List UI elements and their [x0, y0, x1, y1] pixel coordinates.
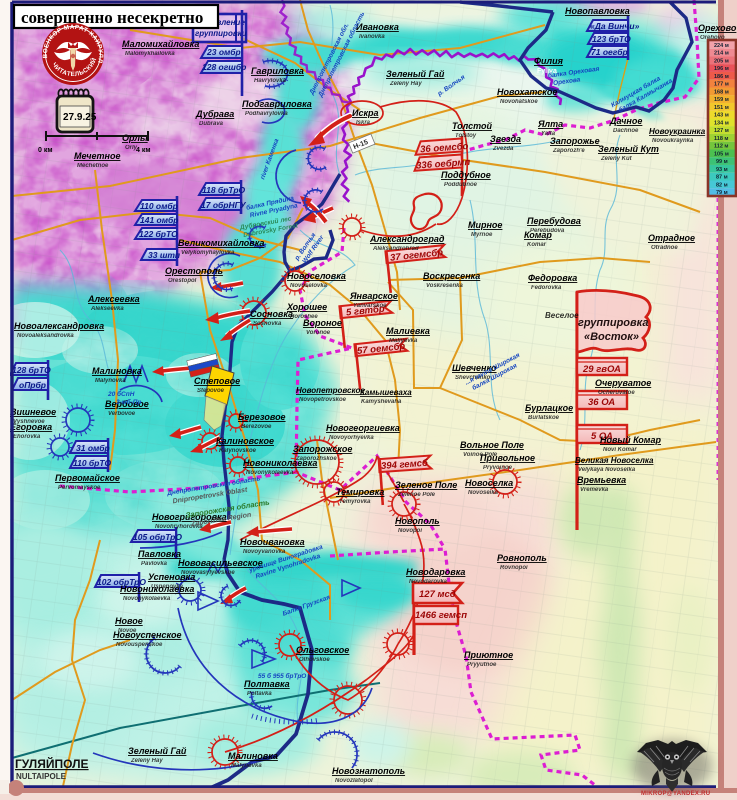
svg-text:127 м: 127 м	[714, 128, 729, 134]
svg-text:Малиевка: Малиевка	[386, 326, 430, 336]
svg-text:1466 гемсп: 1466 гемсп	[415, 610, 467, 621]
svg-text:118 м: 118 м	[714, 136, 728, 142]
svg-text:93 м: 93 м	[716, 167, 728, 173]
svg-text:0 км: 0 км	[38, 147, 53, 154]
svg-text:Malynovka: Malynovka	[231, 763, 262, 769]
svg-text:105 м: 105 м	[714, 151, 729, 157]
svg-text:Маломихайловка: Маломихайловка	[122, 39, 199, 49]
svg-text:Новый Комар: Новый Комар	[600, 435, 661, 445]
svg-text:Приютное: Приютное	[464, 650, 513, 660]
svg-text:Kamyshevaha: Kamyshevaha	[361, 399, 402, 405]
svg-text:Novoaleksandrovka: Novoaleksandrovka	[17, 333, 74, 339]
svg-text:Zeleny Hay: Zeleny Hay	[130, 758, 163, 764]
svg-text:Егоровка: Егоровка	[10, 422, 52, 432]
svg-text:Поддубное: Поддубное	[441, 170, 491, 180]
svg-text:Павловка: Павловка	[138, 549, 181, 559]
svg-text:Алексеевка: Алексеевка	[87, 294, 140, 304]
svg-text:Velykomyhaylovka: Velykomyhaylovka	[181, 250, 235, 256]
svg-text:Ольговское: Ольговское	[296, 645, 349, 655]
svg-text:Толстой: Толстой	[452, 121, 493, 131]
svg-text:Орлы: Орлы	[122, 133, 148, 143]
svg-text:Новодаровка: Новодаровка	[406, 567, 465, 577]
svg-text:Хорошее: Хорошее	[286, 302, 327, 312]
svg-text:31 омбр: 31 омбр	[76, 443, 110, 453]
svg-text:NULTAIPOLE: NULTAIPOLE	[16, 772, 67, 781]
svg-text:33 штп: 33 штп	[148, 250, 181, 260]
svg-text:143 м: 143 м	[714, 113, 729, 119]
svg-text:Мирное: Мирное	[468, 220, 502, 230]
svg-text:Ivanovka: Ivanovka	[359, 34, 385, 40]
svg-text:Мечетное: Мечетное	[74, 151, 120, 161]
svg-text:128 брТО: 128 брТО	[12, 365, 51, 375]
svg-text:Камышеваха: Камышеваха	[360, 388, 412, 397]
svg-text:Dachnoe: Dachnoe	[613, 128, 639, 134]
svg-text:Burlatskoe: Burlatskoe	[528, 415, 560, 421]
svg-text:Филия: Филия	[534, 56, 564, 66]
svg-text:Успеновка: Успеновка	[148, 572, 195, 582]
svg-text:186 м: 186 м	[714, 74, 729, 80]
svg-text:Зеленый Кут: Зеленый Кут	[598, 144, 659, 154]
svg-text:Novozlatopol: Novozlatopol	[335, 778, 373, 784]
svg-text:Zaporozh'e: Zaporozh'e	[552, 148, 585, 154]
svg-text:Очеруватое: Очеруватое	[595, 378, 651, 388]
svg-text:Kalynovskoe: Kalynovskoe	[219, 448, 257, 454]
svg-text:122 брТО: 122 брТО	[139, 229, 178, 239]
svg-text:99 м: 99 м	[716, 159, 728, 165]
svg-text:Дубрава: Дубрава	[195, 109, 234, 119]
svg-text:Степовое: Степовое	[194, 376, 240, 386]
svg-text:Январское: Январское	[349, 291, 398, 301]
svg-text:Zvezda: Zvezda	[492, 146, 514, 152]
svg-text:Новоселовка: Новоселовка	[287, 271, 346, 281]
svg-text:Novouspenskoe: Novouspenskoe	[116, 642, 163, 648]
svg-text:Berezovoe: Berezovoe	[241, 424, 272, 430]
svg-text:Бурлацкое: Бурлацкое	[525, 403, 573, 413]
svg-text:27.9.25: 27.9.25	[63, 112, 97, 123]
svg-text:Zaporozhskoe: Zaporozhskoe	[295, 456, 337, 462]
svg-text:Новогеоргиевка: Новогеоргиевка	[326, 423, 400, 433]
svg-text:123 брТО: 123 брТО	[592, 34, 631, 44]
svg-text:Aleksandrohrad: Aleksandrohrad	[372, 246, 419, 252]
svg-text:Pervomayskoe: Pervomayskoe	[58, 485, 101, 491]
svg-text:Novohatskoe: Novohatskoe	[500, 99, 538, 105]
svg-text:Александроград: Александроград	[369, 234, 445, 244]
svg-text:Orestopol: Orestopol	[168, 278, 197, 284]
svg-text:Великая Новоселка: Великая Новоселка	[575, 456, 654, 465]
svg-text:Myrnoe: Myrnoe	[471, 232, 493, 238]
svg-text:Малиновка: Малиновка	[228, 751, 278, 761]
svg-text:Новоалександровка: Новоалександровка	[14, 321, 104, 331]
svg-text:Комар: Комар	[524, 230, 552, 240]
svg-text:20 бСпН: 20 бСпН	[107, 390, 135, 398]
svg-text:Temyrovka: Temyrovka	[339, 499, 371, 505]
svg-text:Pryvoinoe: Pryvoinoe	[483, 465, 513, 471]
svg-text:Веселое: Веселое	[545, 311, 579, 320]
svg-text:17 обрНГУ: 17 обрНГУ	[201, 200, 247, 210]
svg-text:Yalta: Yalta	[541, 131, 556, 137]
svg-text:151 м: 151 м	[714, 105, 729, 111]
svg-text:Novoseika: Novoseika	[468, 490, 499, 496]
svg-text:Zeleny Kut: Zeleny Kut	[600, 156, 633, 162]
svg-text:29 гвОА: 29 гвОА	[582, 364, 621, 375]
svg-text:177 м: 177 м	[714, 82, 729, 88]
svg-text:Zelenoe Pole: Zelenoe Pole	[397, 492, 436, 498]
svg-text:Орехово: Орехово	[698, 23, 737, 33]
svg-text:Дачное: Дачное	[609, 116, 642, 126]
svg-text:«Восток»: «Восток»	[584, 331, 639, 343]
svg-text:Новохатское: Новохатское	[497, 87, 557, 97]
svg-text:Zeleny Hay: Zeleny Hay	[389, 81, 422, 87]
svg-text:Novoyvanovka: Novoyvanovka	[243, 549, 286, 555]
svg-text:Novi Komar: Novi Komar	[603, 447, 637, 453]
svg-text:Привольное: Привольное	[480, 453, 535, 463]
svg-text:Otradnoe: Otradnoe	[651, 245, 678, 251]
svg-text:Новоивановка: Новоивановка	[240, 537, 305, 547]
svg-text:Искра: Искра	[352, 108, 379, 118]
svg-text:Великомихайловка: Великомихайловка	[178, 238, 264, 248]
svg-text:Новополь: Новополь	[395, 516, 440, 526]
svg-text:196 м: 196 м	[714, 66, 729, 72]
svg-text:Запорожское: Запорожское	[293, 444, 352, 454]
svg-text:Maliyevka: Maliyevka	[389, 338, 418, 344]
svg-text:Малиновка: Малиновка	[92, 366, 142, 376]
svg-text:Voskresenka: Voskresenka	[426, 283, 463, 289]
svg-text:Tolstoy: Tolstoy	[455, 133, 477, 139]
svg-text:Dubrava: Dubrava	[199, 121, 224, 127]
svg-text:82 м: 82 м	[716, 182, 728, 188]
svg-text:Novopetrovskoe: Novopetrovskoe	[299, 397, 347, 403]
svg-text:Pryyutnoe: Pryyutnoe	[467, 662, 497, 668]
svg-text:Velykaya Novoselka: Velykaya Novoselka	[578, 467, 636, 473]
svg-text:Новопетровское: Новопетровское	[296, 386, 365, 395]
svg-text:Новоуспенское: Новоуспенское	[113, 630, 182, 640]
svg-text:Звезда: Звезда	[490, 134, 521, 144]
svg-text:Подгавриловка: Подгавриловка	[242, 99, 312, 109]
svg-text:Novoselovka: Novoselovka	[290, 283, 328, 289]
svg-text:Havrylovka: Havrylovka	[254, 78, 287, 84]
svg-text:Новознатополь: Новознатополь	[332, 766, 405, 776]
svg-text:Komar: Komar	[527, 242, 547, 248]
svg-text:Ялта: Ялта	[537, 119, 563, 129]
svg-text:Vremevka: Vremevka	[580, 487, 609, 493]
svg-text:Федоровка: Федоровка	[528, 273, 577, 283]
svg-text:118 брТрО: 118 брТрО	[202, 185, 246, 195]
svg-text:Новоукраинка: Новоукраинка	[649, 127, 706, 136]
svg-text:Времьевка: Времьевка	[577, 475, 626, 485]
svg-text:110 омбр: 110 омбр	[140, 201, 178, 211]
svg-text:Ивановка: Ивановка	[356, 22, 399, 32]
svg-text:Stepovoe: Stepovoe	[197, 388, 225, 394]
svg-text:Poddubnoe: Poddubnoe	[444, 182, 478, 188]
svg-text:Novoyorhyevka: Novoyorhyevka	[329, 435, 374, 441]
svg-text:112 м: 112 м	[714, 144, 728, 150]
svg-text:Гавриловка: Гавриловка	[251, 66, 304, 76]
svg-text:Калиновское: Калиновское	[216, 436, 274, 446]
svg-text:«Да Винчи»: «Да Винчи»	[590, 21, 640, 31]
svg-text:Novonykolaevka: Novonykolaevka	[246, 470, 294, 476]
svg-text:55 б 955 брТрО: 55 б 955 брТрО	[258, 672, 306, 680]
svg-text:Орестополь: Орестополь	[165, 266, 223, 276]
svg-text:Зеленое Поле: Зеленое Поле	[395, 480, 457, 490]
svg-text:224 м: 224 м	[714, 43, 729, 49]
svg-text:Темировка: Темировка	[336, 487, 384, 497]
svg-text:Yanvarskoe: Yanvarskoe	[353, 303, 387, 309]
svg-text:Вольное Поле: Вольное Поле	[460, 440, 524, 450]
svg-text:Mechetnoe: Mechetnoe	[77, 163, 109, 169]
svg-text:Первомайское: Первомайское	[55, 473, 120, 483]
svg-text:Novonykolaevka: Novonykolaevka	[123, 596, 171, 602]
svg-text:Sosnovka: Sosnovka	[253, 321, 282, 327]
svg-text:105 обрТрО: 105 обрТрО	[133, 532, 182, 542]
svg-text:4 км: 4 км	[136, 147, 151, 154]
svg-text:Fedorovka: Fedorovka	[531, 285, 562, 291]
svg-text:Verbovoe: Verbovoe	[108, 411, 136, 417]
svg-text:Ehorovka: Ehorovka	[13, 434, 41, 440]
svg-text:Полтавка: Полтавка	[244, 679, 290, 689]
svg-text:Вороное: Вороное	[303, 318, 342, 328]
svg-text:Новое: Новое	[115, 616, 143, 626]
svg-text:3-мб-Пр: 3-мб-Пр	[116, 398, 141, 406]
svg-text:группировки: группировки	[195, 29, 247, 38]
svg-text:Березовое: Березовое	[238, 412, 286, 422]
svg-text:Rovnopoi: Rovnopoi	[500, 565, 528, 571]
svg-text:Iskra: Iskra	[356, 120, 371, 126]
svg-text:110 брТО: 110 брТО	[73, 458, 111, 468]
svg-text:Новониколаевка: Новониколаевка	[120, 584, 194, 594]
svg-text:87 м: 87 м	[716, 175, 728, 181]
svg-text:Novopoi: Novopoi	[398, 528, 422, 534]
svg-text:совершенно несекретно: совершенно несекретно	[21, 8, 203, 27]
svg-text:Новопавловка: Новопавловка	[565, 6, 630, 16]
svg-text:141 омбр: 141 омбр	[140, 215, 178, 225]
svg-text:Voronoe: Voronoe	[306, 330, 331, 336]
svg-text:оПрбр: оПрбр	[19, 380, 46, 390]
svg-text:Воскресенка: Воскресенка	[423, 271, 480, 281]
svg-text:Вишневое: Вишневое	[10, 407, 56, 417]
svg-text:Ровнополь: Ровнополь	[497, 553, 547, 563]
svg-text:214 м: 214 м	[714, 51, 729, 57]
svg-text:Poltavka: Poltavka	[247, 691, 272, 697]
svg-text:36 ОА: 36 ОА	[588, 397, 615, 408]
svg-text:Podhavrylovka: Podhavrylovka	[245, 111, 288, 117]
svg-text:Зеленый Гай: Зеленый Гай	[128, 746, 187, 756]
svg-text:71 оегбр: 71 оегбр	[591, 47, 628, 57]
svg-text:MIKROP@YANDEX.RU: MIKROP@YANDEX.RU	[641, 791, 710, 797]
svg-text:Запорожье: Запорожье	[550, 136, 600, 146]
svg-text:Зеленый Гай: Зеленый Гай	[386, 69, 445, 79]
svg-text:23 омбр: 23 омбр	[206, 47, 241, 57]
svg-text:134 м: 134 м	[714, 120, 729, 126]
svg-text:Pavlovka: Pavlovka	[141, 561, 168, 567]
svg-text:205 м: 205 м	[714, 58, 729, 64]
svg-text:127 мсд: 127 мсд	[419, 589, 456, 600]
svg-text:Malynovka: Malynovka	[95, 378, 126, 384]
svg-text:Alekseevka: Alekseevka	[90, 306, 124, 312]
svg-text:Olhovskoe: Olhovskoe	[299, 657, 330, 663]
svg-text:128 огшбр: 128 огшбр	[202, 62, 246, 72]
svg-text:Новоселка: Новоселка	[465, 478, 513, 488]
svg-text:159 м: 159 м	[714, 97, 729, 103]
svg-text:Novodarovka: Novodarovka	[409, 579, 448, 585]
svg-text:Malomykhailovka: Malomykhailovka	[125, 51, 175, 57]
svg-text:168 м: 168 м	[714, 89, 729, 95]
svg-text:Отрадное: Отрадное	[648, 233, 695, 243]
svg-text:ГУЛЯЙПОЛЕ: ГУЛЯЙПОЛЕ	[15, 756, 89, 771]
svg-text:Перебудова: Перебудова	[527, 216, 581, 226]
svg-text:Ocheruvatoe: Ocheruvatoe	[598, 390, 635, 396]
svg-text:группировка: группировка	[578, 317, 649, 329]
